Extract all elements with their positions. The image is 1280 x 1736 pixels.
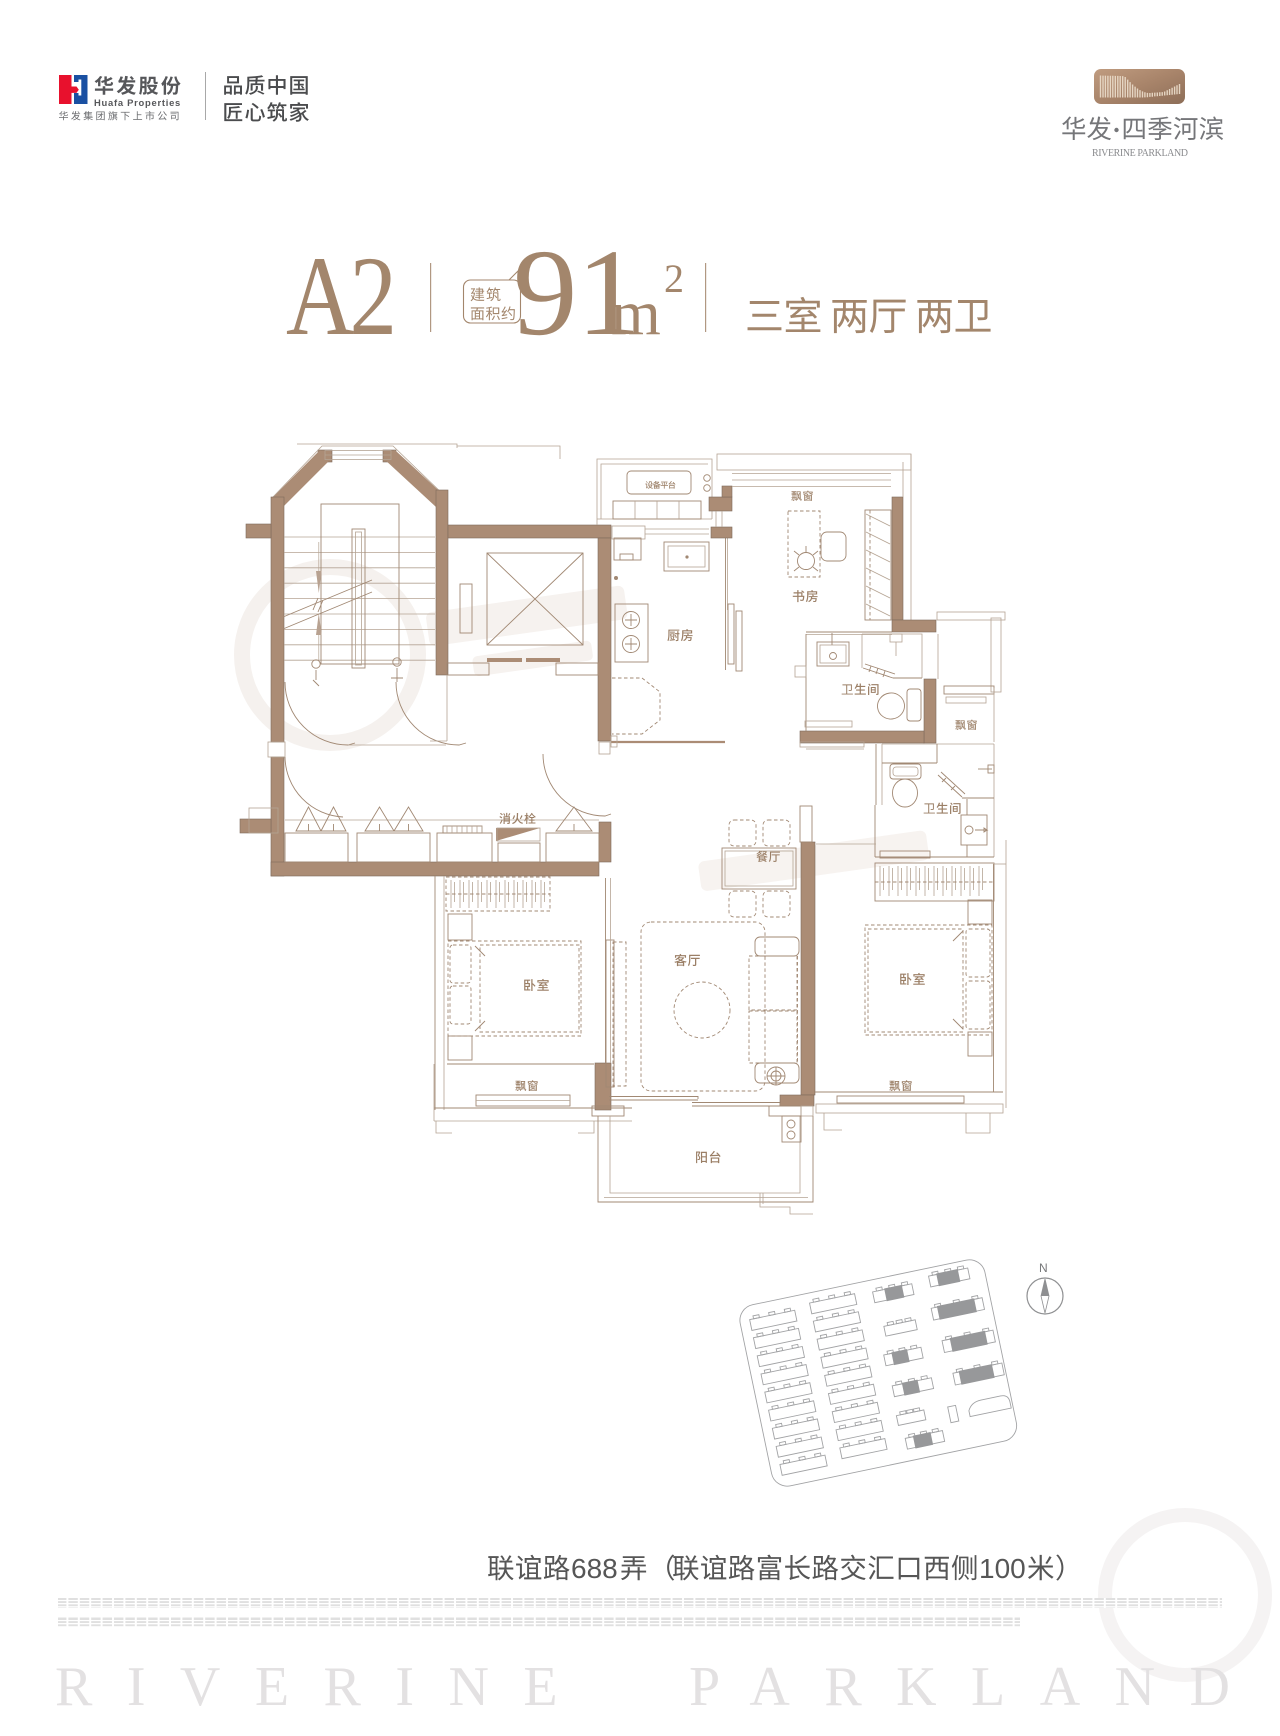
svg-text:N: N [1039,1261,1048,1275]
svg-text:RIVERINE PARKLAND: RIVERINE PARKLAND [55,1656,1230,1718]
svg-text:RIVERINE PARKLAND: RIVERINE PARKLAND [1092,148,1188,159]
svg-text:2: 2 [664,256,684,301]
svg-text:100: 100 [979,1553,1026,1584]
svg-text:688: 688 [571,1553,618,1584]
svg-text:Huafa Properties: Huafa Properties [94,97,181,108]
svg-text:A2: A2 [286,233,392,359]
svg-text:m: m [611,277,661,348]
